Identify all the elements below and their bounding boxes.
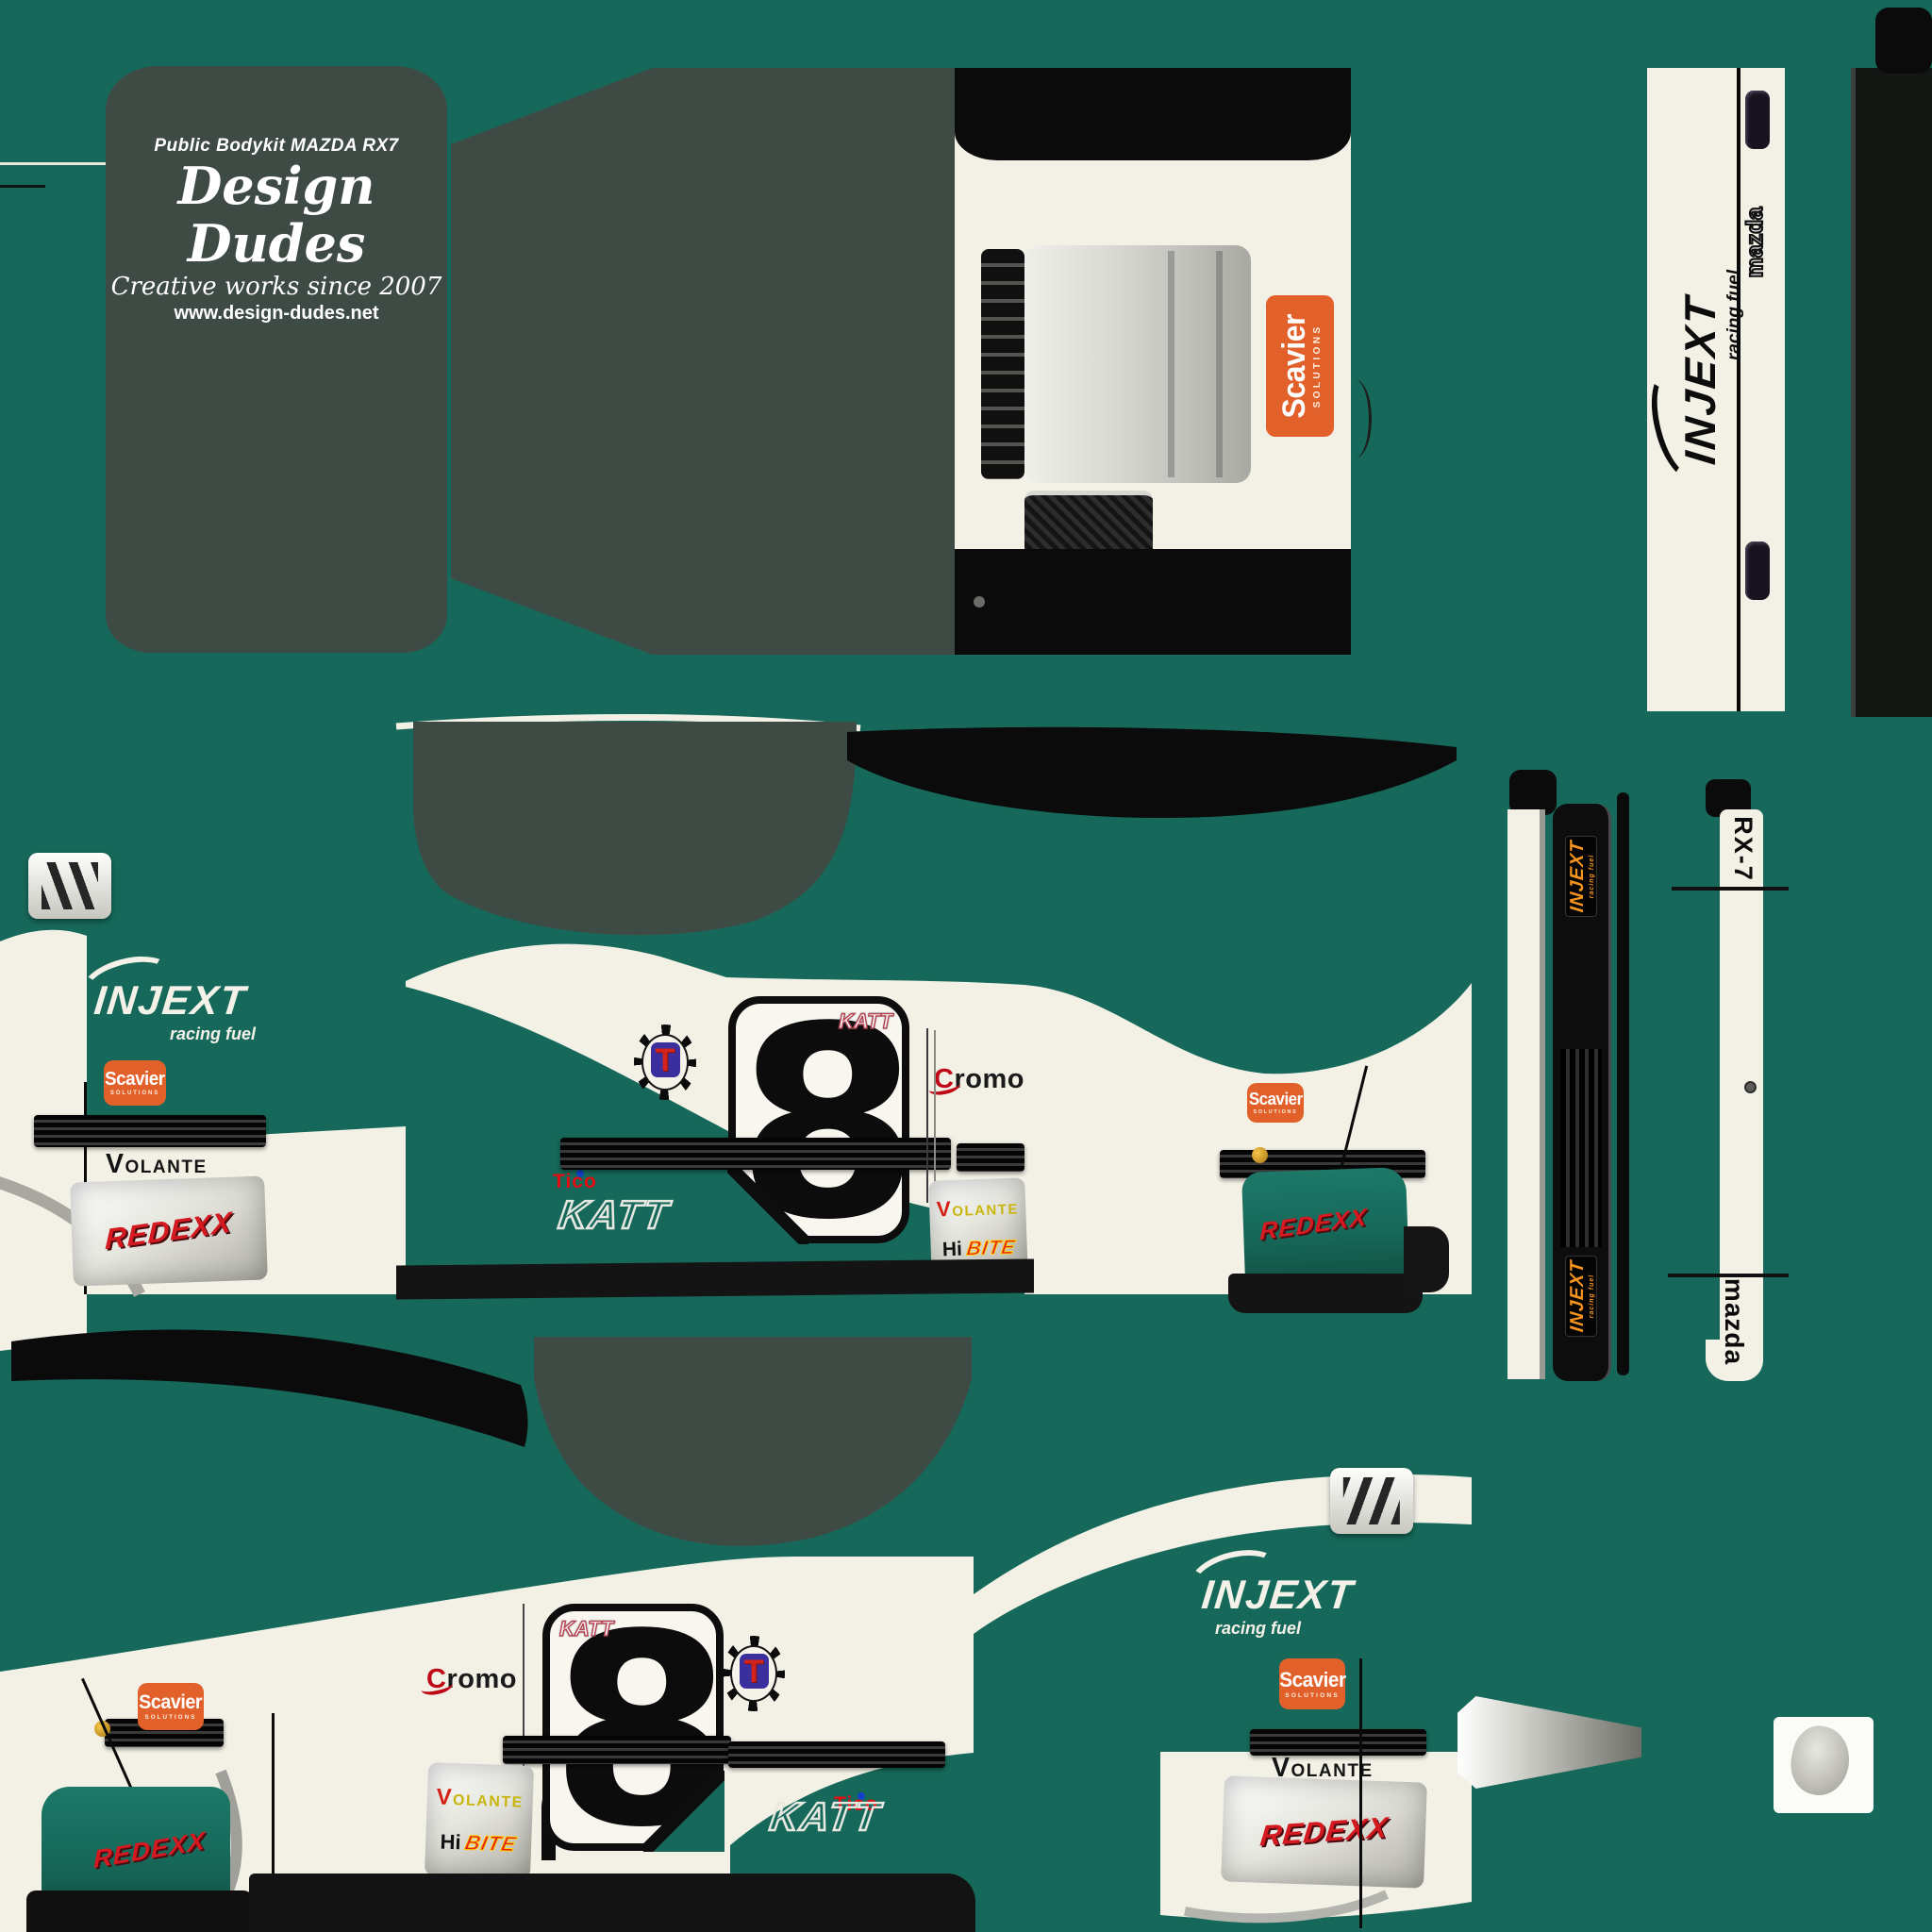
mid-side-glass-shape	[413, 722, 857, 935]
top-left-hairline-black	[0, 185, 45, 188]
door-handle-top	[1745, 91, 1770, 149]
watermark-kit-title: Public Bodykit MAZDA RX7	[106, 136, 447, 156]
rocker-panel-mid	[396, 1258, 1034, 1299]
redexx-logo: REDEXX	[1259, 1203, 1368, 1247]
hood-windshield-band	[955, 68, 1351, 160]
hibite-wordmark: BITE	[463, 1833, 519, 1856]
katt-outline-bottom: KATT	[766, 1794, 906, 1847]
scavier-badge-mid-right: Scavier SOLUTIONS	[1247, 1083, 1304, 1123]
rocker-vent-mid-left	[34, 1115, 266, 1147]
injext-logo-bottom-right: INJEXT racing fuel	[1202, 1575, 1367, 1656]
hibite-prefix: Hi	[440, 1832, 461, 1854]
scavier-wordmark: Scavier	[140, 1692, 203, 1712]
scavier-wordmark: Scavier	[105, 1070, 165, 1089]
rocker-vent-mid-small	[957, 1143, 1024, 1172]
wing-cap-top	[1509, 770, 1557, 815]
redexx-logo: REDEXX	[93, 1826, 206, 1874]
mirror-patch	[1774, 1717, 1874, 1813]
door-handle-bottom	[1745, 541, 1770, 600]
volante-logo: VOLANTE	[936, 1197, 1019, 1222]
volante-hibite-panel-bottom: VOLANTE Hi BITE	[425, 1762, 534, 1879]
design-dudes-watermark: Public Bodykit MAZDA RX7 Design Dudes Cr…	[106, 66, 447, 325]
tico-wordmark: Tico	[553, 1171, 597, 1192]
hibite-prefix: Hi	[941, 1239, 962, 1259]
wing-panel-slats	[1560, 1049, 1602, 1247]
scavier-wordmark: Scavier	[1249, 1091, 1303, 1108]
tico-logo-mid: Tico	[553, 1172, 619, 1194]
mazda-badge-bottom: mazda	[1717, 1269, 1749, 1374]
scavier-solutions-label: SOLUTIONS	[145, 1714, 197, 1721]
katt-plate-logo: KATT	[559, 1617, 613, 1641]
rx7-underline	[1672, 887, 1789, 891]
mid-frame-line-1	[926, 1028, 928, 1203]
rocker-vent-bottom-right	[1250, 1729, 1426, 1756]
injext-logo-mid-left: INJEXT racing fuel	[94, 981, 259, 1057]
bumper-base-mid-right	[1228, 1274, 1423, 1313]
mirror-shell	[1785, 1722, 1856, 1802]
katt-outline-mid: KATT	[555, 1192, 694, 1245]
watermark-slogan: Creative works since 2007	[106, 274, 447, 301]
injext-wordmark: INJEXT	[1568, 840, 1587, 913]
top-left-hairline-white	[0, 162, 111, 165]
volante-logo: VOLANTE	[436, 1786, 524, 1811]
hood-vent-slats	[981, 249, 1024, 479]
fuel-cap-dot	[1252, 1147, 1268, 1163]
top-section: Public Bodykit MAZDA RX7 Design Dudes Cr…	[0, 0, 1932, 723]
scavier-badge-hood: Scavier SOLUTIONS	[1266, 295, 1334, 437]
cromo-logo-bottom: Cromo	[426, 1664, 530, 1698]
bottom-door-seam-right	[1359, 1658, 1362, 1928]
redexx-logo: REDEXX	[105, 1206, 233, 1257]
bumper-base-bottom-left	[26, 1890, 253, 1932]
hood-vent-body	[1024, 245, 1251, 483]
scavier-badge-bottom-right: Scavier SOLUTIONS	[1279, 1658, 1345, 1709]
number-plate-mid: 8 KATT	[728, 996, 909, 1243]
t-sun-emblem-mid: T	[634, 1024, 696, 1100]
injext-wordmark: INJEXT	[1200, 1575, 1370, 1616]
rocker-vent-mid-center	[560, 1138, 951, 1170]
redexx-panel-bottom-right: REDEXX	[1221, 1775, 1427, 1888]
bumper-shadow-mid-right	[1404, 1226, 1449, 1292]
wing-white-strip	[1507, 809, 1545, 1379]
injext-tagline: racing fuel	[1725, 266, 1743, 464]
tico-i-dot-icon	[576, 1170, 584, 1177]
plate-corner-cut	[643, 1771, 724, 1852]
injext-wordmark: INJEXT	[1568, 1259, 1587, 1333]
volante-logo-mid-left: VOLANTE	[106, 1151, 228, 1177]
fender-vent-bottom	[1330, 1468, 1413, 1534]
fender-vent-slats	[42, 862, 98, 909]
hood-rivet	[974, 596, 985, 608]
injext-badge-wing-bottom: INJEXT racing fuel	[1565, 1256, 1597, 1337]
hibite-logo: Hi BITE	[440, 1832, 517, 1856]
plate-corner-cut	[727, 1163, 808, 1244]
scavier-wordmark: Scavier	[1278, 314, 1310, 418]
livery-texture-sheet: Public Bodykit MAZDA RX7 Design Dudes Cr…	[0, 0, 1932, 1932]
t-sun-letter: T	[723, 1656, 785, 1688]
mid-frame-line-2	[934, 1030, 936, 1205]
injext-tagline: racing fuel	[1202, 1620, 1367, 1637]
rx7-model-badge: RX-7	[1727, 797, 1757, 901]
injext-tagline: racing fuel	[1589, 855, 1595, 898]
bottom-side-glass-shape	[534, 1337, 972, 1546]
scavier-badge-mid-left: Scavier SOLUTIONS	[104, 1060, 166, 1106]
t-sun-emblem-bottom: T	[723, 1636, 785, 1711]
bumper-corner-mid-right: REDEXX	[1241, 1167, 1409, 1284]
hood-seam-arc	[1338, 379, 1372, 458]
watermark-brand: Design Dudes	[106, 158, 447, 272]
scavier-solutions-label: SOLUTIONS	[1312, 325, 1323, 408]
hood-cowl-band	[955, 549, 1351, 655]
fender-vent-mid	[28, 853, 111, 919]
redexx-panel-mid-left: REDEXX	[70, 1175, 268, 1286]
mid-windshield-band	[847, 727, 1457, 818]
t-sun-letter: T	[634, 1044, 696, 1076]
rocker-vent-bottom-center	[503, 1736, 731, 1764]
wing-thin-strip	[1617, 792, 1629, 1375]
scavier-solutions-label: SOLUTIONS	[1285, 1692, 1339, 1699]
sill-dark-column	[1851, 68, 1932, 717]
hibite-wordmark: BITE	[965, 1237, 1017, 1258]
scavier-badge-bottom-left: Scavier SOLUTIONS	[138, 1683, 204, 1730]
cowl-panel	[451, 68, 955, 655]
injext-badge-wing-top: INJEXT racing fuel	[1565, 836, 1597, 917]
cromo-logo-mid: Cromo	[934, 1064, 1038, 1098]
injext-tagline: racing fuel	[94, 1025, 259, 1042]
redexx-logo: REDEXX	[1258, 1811, 1390, 1854]
injext-tagline: racing fuel	[1589, 1274, 1595, 1318]
strip-rivet	[1744, 1081, 1757, 1093]
roof-panel: Public Bodykit MAZDA RX7 Design Dudes Cr…	[106, 66, 447, 653]
katt-plate-logo: KATT	[839, 1009, 892, 1034]
injext-wordmark: INJEXT	[92, 981, 262, 1022]
number-plate-bottom: 8 KATT	[542, 1604, 724, 1851]
scavier-wordmark: Scavier	[1279, 1670, 1345, 1690]
bottom-rear-window-band	[11, 1329, 527, 1447]
fender-vent-slats	[1343, 1477, 1400, 1524]
injext-logo-door: INJEXT racing fuel	[1678, 266, 1757, 464]
rocker-panel-bottom	[249, 1874, 975, 1932]
hood-vent-ridges	[1126, 251, 1251, 477]
scavier-solutions-label: SOLUTIONS	[110, 1091, 159, 1096]
hibite-logo: Hi BITE	[941, 1237, 1016, 1259]
watermark-url: www.design-dudes.net	[106, 303, 447, 324]
injext-wordmark: INJEXT	[1678, 264, 1722, 467]
hood-vent	[981, 245, 1251, 483]
corner-cap	[1875, 8, 1932, 74]
scavier-solutions-label: SOLUTIONS	[1254, 1109, 1298, 1115]
rocker-vent-bottom-small	[728, 1741, 945, 1768]
